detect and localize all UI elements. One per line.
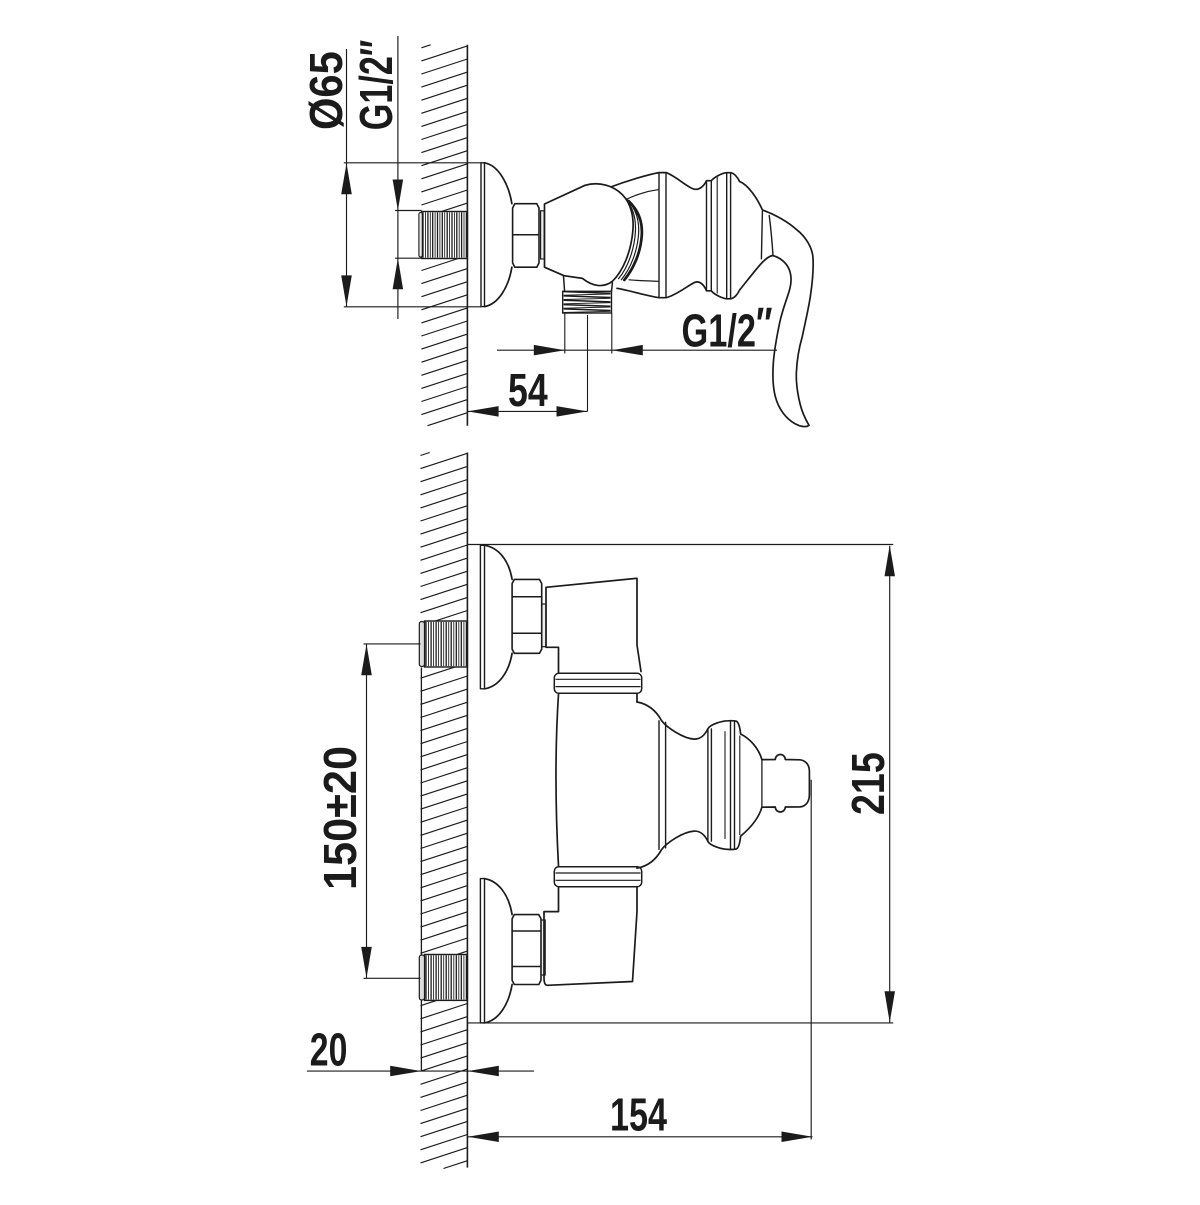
svg-text:154: 154 [610,1088,667,1140]
svg-text:150±20: 150±20 [314,746,366,890]
svg-text:215: 215 [842,752,894,815]
svg-text:G1/2″: G1/2″ [350,40,402,130]
svg-text:Ø65: Ø65 [300,51,352,130]
svg-text:54: 54 [508,364,548,416]
svg-text:20: 20 [310,1023,348,1075]
svg-text:G1/2″: G1/2″ [682,298,773,357]
